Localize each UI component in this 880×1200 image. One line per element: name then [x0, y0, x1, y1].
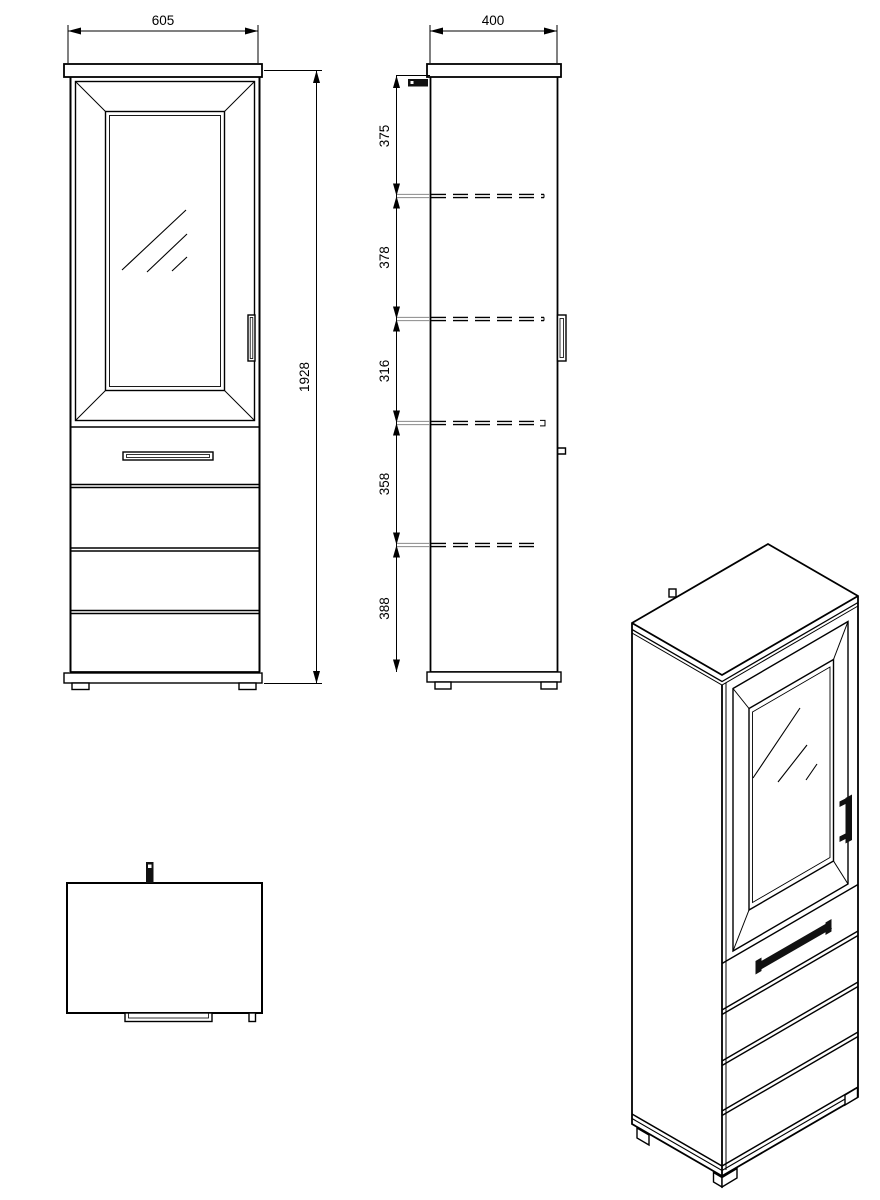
glass-line	[122, 210, 186, 270]
shelf-lines	[396, 194, 545, 546]
foot	[72, 683, 89, 690]
plinth	[427, 672, 561, 682]
front-view: 605	[64, 13, 322, 690]
shelf-line	[396, 420, 545, 426]
side-depth-dim-label: 400	[482, 13, 505, 28]
top-board	[427, 64, 561, 77]
shelf-dim-label-3: 316	[377, 360, 392, 383]
arrowhead-right	[245, 28, 258, 35]
foot	[435, 682, 451, 689]
door-handle-iso	[846, 795, 853, 844]
side-depth-dimension: 400	[430, 13, 557, 63]
front-width-dim-label: 605	[152, 13, 175, 28]
top-view	[67, 862, 262, 1022]
door-handle-plan	[249, 1013, 256, 1022]
side-shelf-dimensions: 375 378 316 358 388	[377, 76, 430, 673]
drawer-stack	[70, 427, 260, 672]
arrowhead-right	[544, 28, 557, 35]
arrowhead-down	[313, 671, 320, 684]
front-width-dimension: 605	[68, 13, 258, 63]
frame-bevel	[225, 82, 255, 112]
glass-edge	[110, 116, 221, 387]
shelf-line	[396, 543, 538, 546]
shelf-dim-label-1: 375	[377, 125, 392, 148]
arrowhead-left	[430, 28, 443, 35]
frame-bevel	[225, 391, 255, 421]
door-outer-frame	[76, 82, 255, 421]
arrowhead-down	[393, 660, 400, 673]
glass-line	[172, 257, 187, 271]
front-height-dim-label: 1928	[297, 362, 312, 392]
frame-bevel	[76, 82, 106, 112]
door-inner-frame	[106, 112, 225, 391]
plinth	[64, 673, 262, 683]
drawer-handle-side	[558, 448, 566, 454]
cabinet-silhouette	[632, 544, 858, 1176]
foot	[541, 682, 557, 689]
shelf-dim-label-5: 388	[377, 597, 392, 620]
shelf-line	[396, 194, 544, 197]
shelf-line	[396, 317, 544, 320]
glass-reflection-lines	[122, 210, 187, 272]
door-handle-side	[558, 315, 567, 361]
side-view: 400	[377, 13, 566, 689]
shelf-dim-label-4: 358	[377, 473, 392, 496]
wall-bracket-iso	[669, 589, 676, 597]
shelf-endcap	[540, 420, 545, 426]
foot	[239, 683, 256, 690]
drawer-handle	[123, 452, 213, 460]
wall-bracket-notch	[411, 81, 414, 84]
glass-line	[147, 234, 187, 272]
drawing-sheet: 605	[0, 0, 880, 1200]
arrowhead-left	[68, 28, 81, 35]
technical-drawing-canvas: 605	[0, 0, 880, 1200]
front-height-dimension: 1928	[264, 71, 322, 684]
door-handle	[248, 315, 255, 361]
drawer-handle-plan	[125, 1013, 212, 1022]
arrowhead-up	[313, 71, 320, 84]
wall-bracket-notch	[148, 865, 152, 869]
isometric-view	[632, 544, 858, 1187]
shelf-dim-label-2: 378	[377, 246, 392, 269]
frame-bevel	[76, 391, 106, 421]
top-board-plan	[67, 883, 262, 1013]
arrowhead-up	[393, 76, 400, 89]
glass-door	[76, 82, 256, 421]
top-board	[64, 64, 262, 77]
